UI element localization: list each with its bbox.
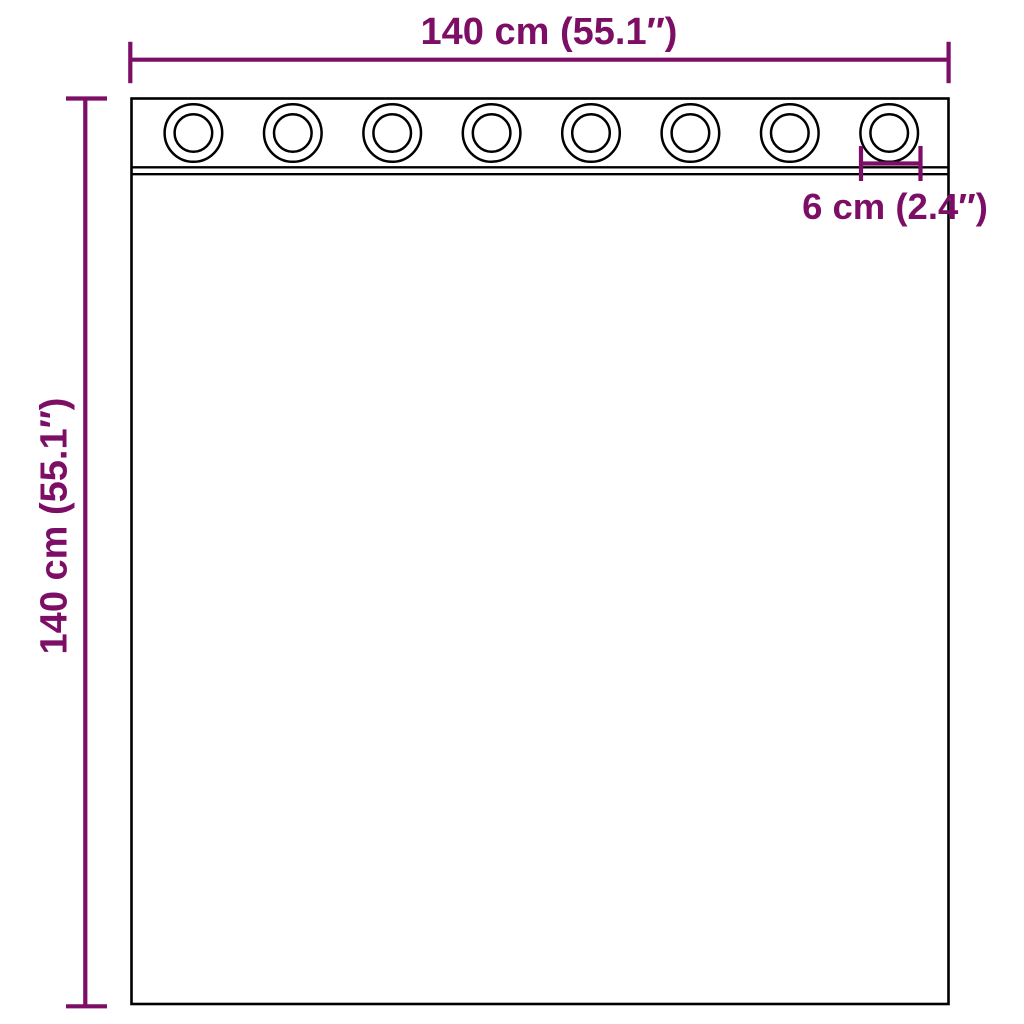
svg-text:6 cm (2.4″): 6 cm (2.4″): [802, 186, 988, 227]
svg-text:140 cm (55.1″): 140 cm (55.1″): [34, 398, 76, 655]
svg-text:140 cm (55.1″): 140 cm (55.1″): [421, 11, 678, 53]
